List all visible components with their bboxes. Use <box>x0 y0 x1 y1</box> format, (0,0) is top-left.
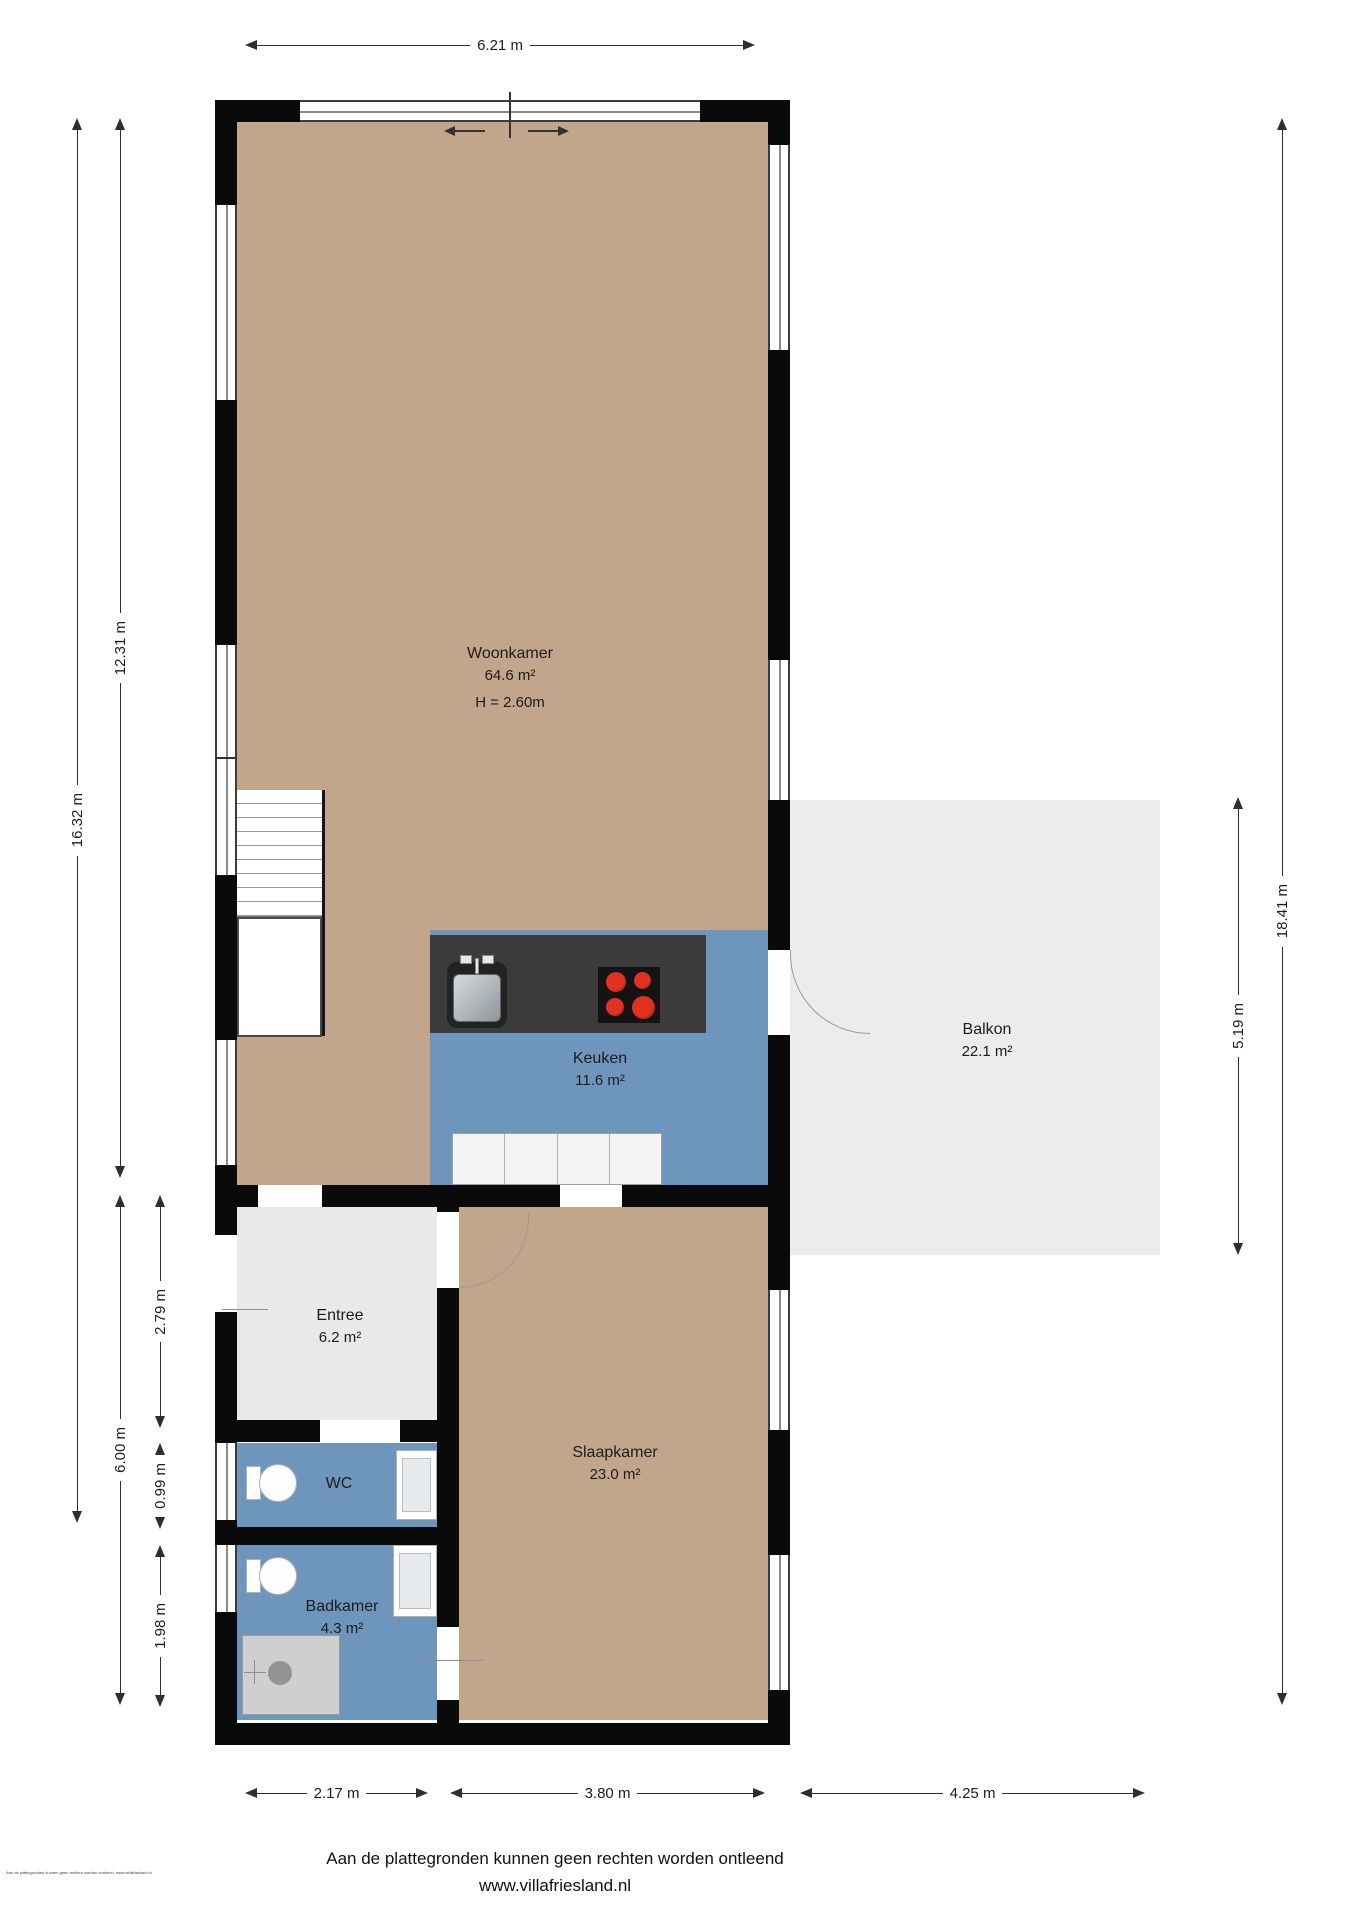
window-wc <box>215 1443 237 1520</box>
label-entree: Entree 6.2 m² <box>240 1305 440 1349</box>
window-top-divider <box>509 92 511 138</box>
front-door-opening <box>215 1235 237 1312</box>
kitchen-faucet-spout <box>475 958 479 974</box>
room-name: Woonkamer <box>385 643 635 665</box>
kitchen-faucet <box>460 955 472 964</box>
room-area: 22.1 m² <box>887 1041 1087 1063</box>
footer: Aan de plattegronden kunnen geen rechten… <box>105 1845 1005 1899</box>
room-area: 23.0 m² <box>515 1464 715 1486</box>
dim-value: 4.25 m <box>943 1785 1003 1802</box>
sliding-arrow-left <box>455 130 485 132</box>
dim-wc-height: 0.99 m <box>152 1443 168 1527</box>
shower-faucet <box>254 1660 255 1684</box>
stair-void <box>237 917 322 1037</box>
label-keuken: Keuken 11.6 m² <box>500 1048 700 1092</box>
keuken-pass-opening <box>560 1185 622 1207</box>
dim-value: 3.80 m <box>578 1785 638 1802</box>
dim-value: 2.17 m <box>307 1785 367 1802</box>
window-left-upper <box>215 205 237 400</box>
footer-disclaimer: Aan de plattegronden kunnen geen rechten… <box>105 1845 1005 1872</box>
label-balkon: Balkon 22.1 m² <box>887 1019 1087 1063</box>
room-ceiling-height: H = 2.60m <box>385 692 635 714</box>
stove-burner <box>632 996 655 1019</box>
stair-treads <box>237 790 322 917</box>
window-left-middle <box>215 645 237 875</box>
dim-right-total: 18.41 m <box>1274 118 1290 1705</box>
shower-drain <box>268 1661 292 1685</box>
dim-value: 0.99 m <box>152 1455 169 1517</box>
dim-value: 16.32 m <box>69 785 86 855</box>
window-badkamer <box>215 1545 237 1612</box>
room-area: 64.6 m² <box>385 665 635 687</box>
entree-door-opening <box>258 1185 322 1207</box>
dim-value: 12.31 m <box>112 613 129 683</box>
stove-burner <box>606 972 626 992</box>
dim-bottom-middle: 3.80 m <box>450 1785 765 1801</box>
cabinet-door <box>453 1134 505 1184</box>
kitchen-faucet-handle <box>482 955 494 964</box>
dim-left-upper: 12.31 m <box>112 118 128 1178</box>
balkon-door-opening <box>768 950 790 1035</box>
room-name: Balkon <box>887 1019 1087 1041</box>
dim-value: 2.79 m <box>152 1281 169 1343</box>
dim-badkamer-height: 1.98 m <box>152 1545 168 1707</box>
badkamer-door-track <box>417 1660 483 1661</box>
kitchen-cabinets <box>452 1133 662 1185</box>
dim-value: 6.21 m <box>470 37 530 54</box>
label-wc: WC <box>289 1473 389 1495</box>
dim-bottom-right: 4.25 m <box>800 1785 1145 1801</box>
window-top-sliding <box>300 100 700 122</box>
watermark: Aan de plattegronden kunnen geen rechten… <box>6 1870 152 1875</box>
room-area: 6.2 m² <box>240 1327 440 1349</box>
cabinet-door <box>558 1134 610 1184</box>
dim-left-lower: 6.00 m <box>112 1195 128 1705</box>
sliding-arrow-right <box>528 130 558 132</box>
room-name: Entree <box>240 1305 440 1327</box>
floorplan-page: Woonkamer 64.6 m² H = 2.60m Keuken 11.6 … <box>0 0 1358 1920</box>
wall-bottom <box>215 1723 790 1745</box>
room-area: 4.3 m² <box>242 1618 442 1640</box>
dim-top-width: 6.21 m <box>245 37 755 53</box>
dim-value: 5.19 m <box>1230 995 1247 1057</box>
wall-wc-badkamer <box>215 1527 459 1545</box>
dim-value: 1.98 m <box>152 1595 169 1657</box>
dim-value: 18.41 m <box>1274 876 1291 946</box>
dim-balkon-height: 5.19 m <box>1230 797 1246 1255</box>
window-entree <box>215 1040 237 1165</box>
window-left-middle-divider <box>215 757 237 759</box>
window-right-middle <box>768 660 790 800</box>
window-right-upper <box>768 145 790 350</box>
footer-website: www.villafriesland.nl <box>105 1872 1005 1899</box>
wc-door-opening <box>320 1420 400 1442</box>
window-slaapkamer-1 <box>768 1290 790 1430</box>
label-woonkamer: Woonkamer 64.6 m² H = 2.60m <box>385 643 635 714</box>
shower-faucet <box>244 1672 266 1673</box>
stairs <box>237 790 325 1036</box>
room-name: Keuken <box>500 1048 700 1070</box>
badkamer-toilet-bowl <box>259 1557 297 1595</box>
cabinet-door <box>505 1134 557 1184</box>
kitchen-sink-basin <box>453 974 501 1022</box>
window-slaapkamer-2 <box>768 1555 790 1690</box>
stove-burner <box>606 998 624 1016</box>
dim-bottom-left: 2.17 m <box>245 1785 428 1801</box>
stove-burner <box>634 972 651 989</box>
room-name: Slaapkamer <box>515 1442 715 1464</box>
dim-entree-height: 2.79 m <box>152 1195 168 1428</box>
room-name: WC <box>289 1473 389 1495</box>
room-name: Badkamer <box>242 1596 442 1618</box>
slaapkamer-door-opening <box>437 1212 459 1288</box>
dim-value: 6.00 m <box>112 1419 129 1481</box>
label-slaapkamer: Slaapkamer 23.0 m² <box>515 1442 715 1486</box>
cabinet-door <box>610 1134 661 1184</box>
wc-washbasin-bowl <box>402 1458 431 1512</box>
label-badkamer: Badkamer 4.3 m² <box>242 1596 442 1640</box>
dim-left-total: 16.32 m <box>69 118 85 1523</box>
room-area: 11.6 m² <box>500 1070 700 1092</box>
